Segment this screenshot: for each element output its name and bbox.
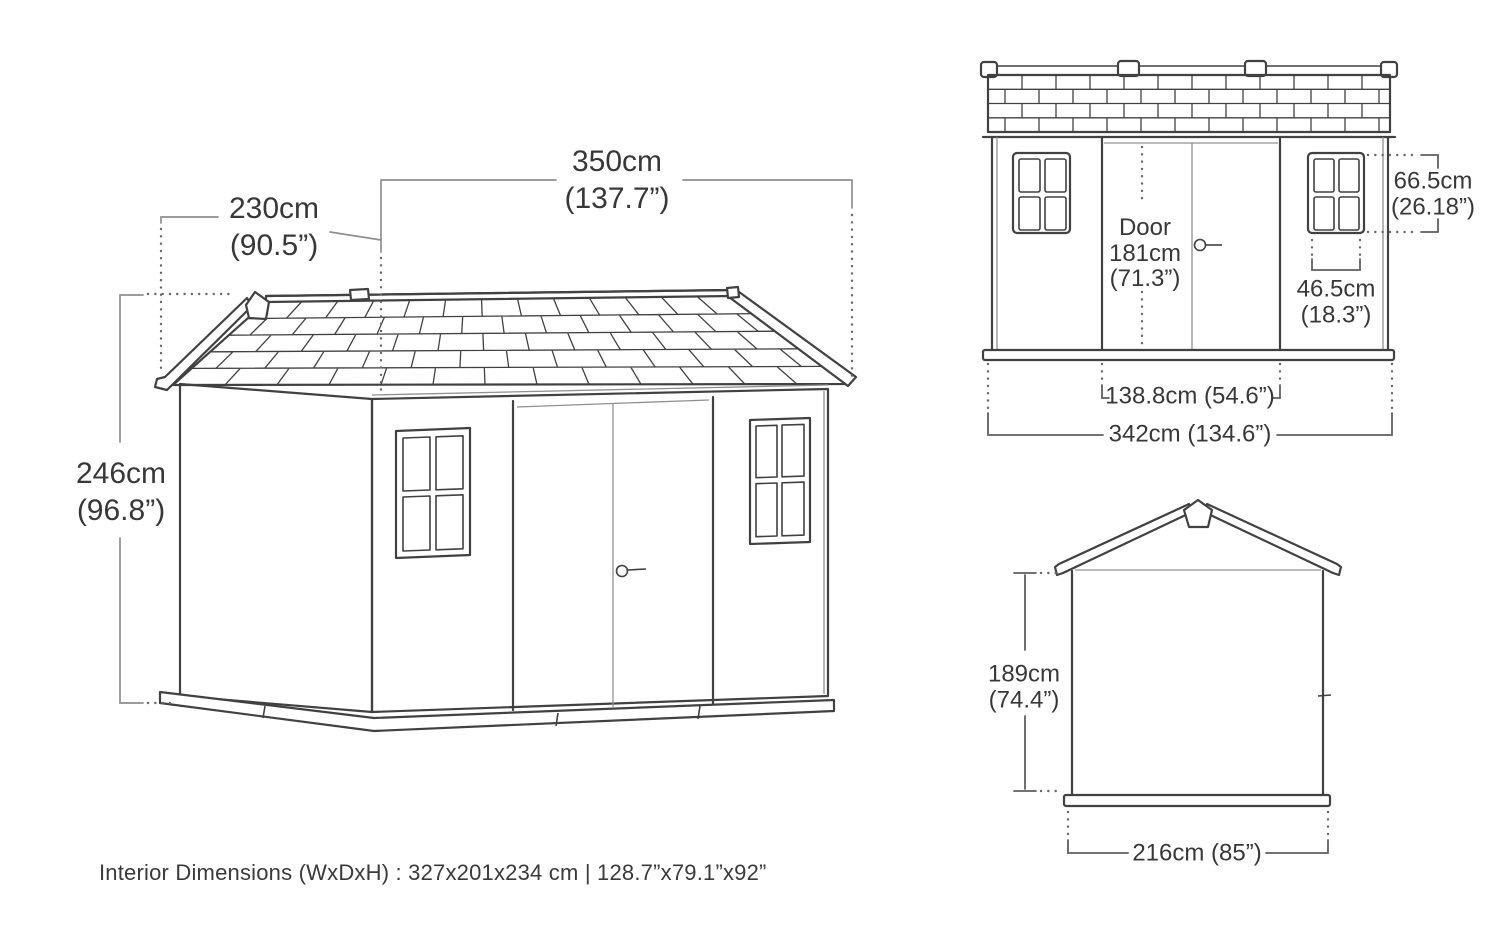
shed-line-art <box>0 0 1500 947</box>
interior-dimensions-caption: Interior Dimensions (WxDxH) : 327x201x23… <box>99 860 767 886</box>
ridge-vent <box>350 289 369 300</box>
side-wall <box>1072 571 1323 795</box>
elevation-window-left <box>1013 153 1070 233</box>
door-span-label: 138.8cm (54.6”) <box>1105 383 1274 409</box>
elevation-window-right <box>1308 153 1364 233</box>
elevation-plinth <box>983 350 1394 360</box>
roof-vent-right <box>1245 61 1266 76</box>
dim-width-label: 350cm (137.7”) <box>564 143 669 217</box>
front-window-left <box>396 428 470 558</box>
door-size-label: Door 181cm (71.3”) <box>1109 215 1181 292</box>
front-elevation-view <box>981 61 1438 435</box>
dim-depth-label: 230cm (90.5”) <box>229 190 319 264</box>
base-skirt <box>160 692 834 731</box>
elevation-door-handle-icon <box>1195 240 1206 251</box>
roof-vent-left <box>1118 61 1139 76</box>
side-handle-icon <box>1318 695 1331 696</box>
gable-wall <box>180 384 372 712</box>
double-door <box>517 400 709 707</box>
shed-dimension-diagram: 230cm (90.5”) 350cm (137.7”) 246cm (96.8… <box>0 0 1500 947</box>
window-width-label: 46.5cm (18.3”) <box>1297 277 1376 328</box>
side-height-label: 189cm (74.4”) <box>988 662 1060 713</box>
side-plinth <box>1064 795 1330 806</box>
perspective-roof <box>155 287 856 390</box>
side-roof <box>1055 500 1341 575</box>
window-height-label: 66.5cm (26.18”) <box>1391 169 1475 220</box>
right-rake-board <box>729 289 856 386</box>
dim-height-label: 246cm (96.8”) <box>76 455 166 529</box>
door-handle-icon <box>617 566 628 577</box>
front-window-right <box>750 418 810 544</box>
side-elevation-view <box>1014 500 1341 853</box>
gable-rake-board <box>155 298 252 390</box>
side-width-label: 216cm (85”) <box>1132 840 1261 866</box>
elevation-roof-shingles <box>983 75 1395 137</box>
front-wall <box>372 389 828 712</box>
dim-line-window-width <box>1312 240 1360 270</box>
overall-width-label: 342cm (134.6”) <box>1109 421 1272 447</box>
